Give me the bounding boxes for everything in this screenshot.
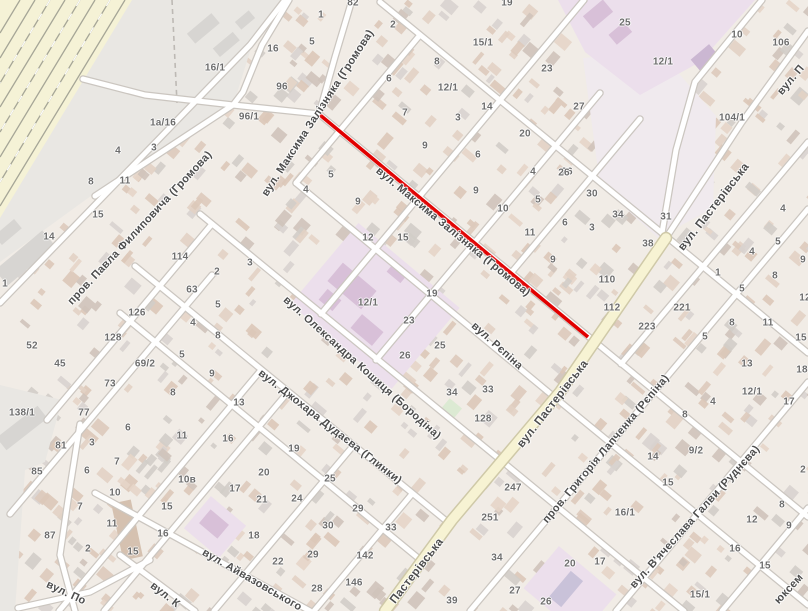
map-graphics (0, 0, 808, 611)
map-canvas[interactable]: вул. Максима Залізняка (Громова)вул. Мак… (0, 0, 808, 611)
